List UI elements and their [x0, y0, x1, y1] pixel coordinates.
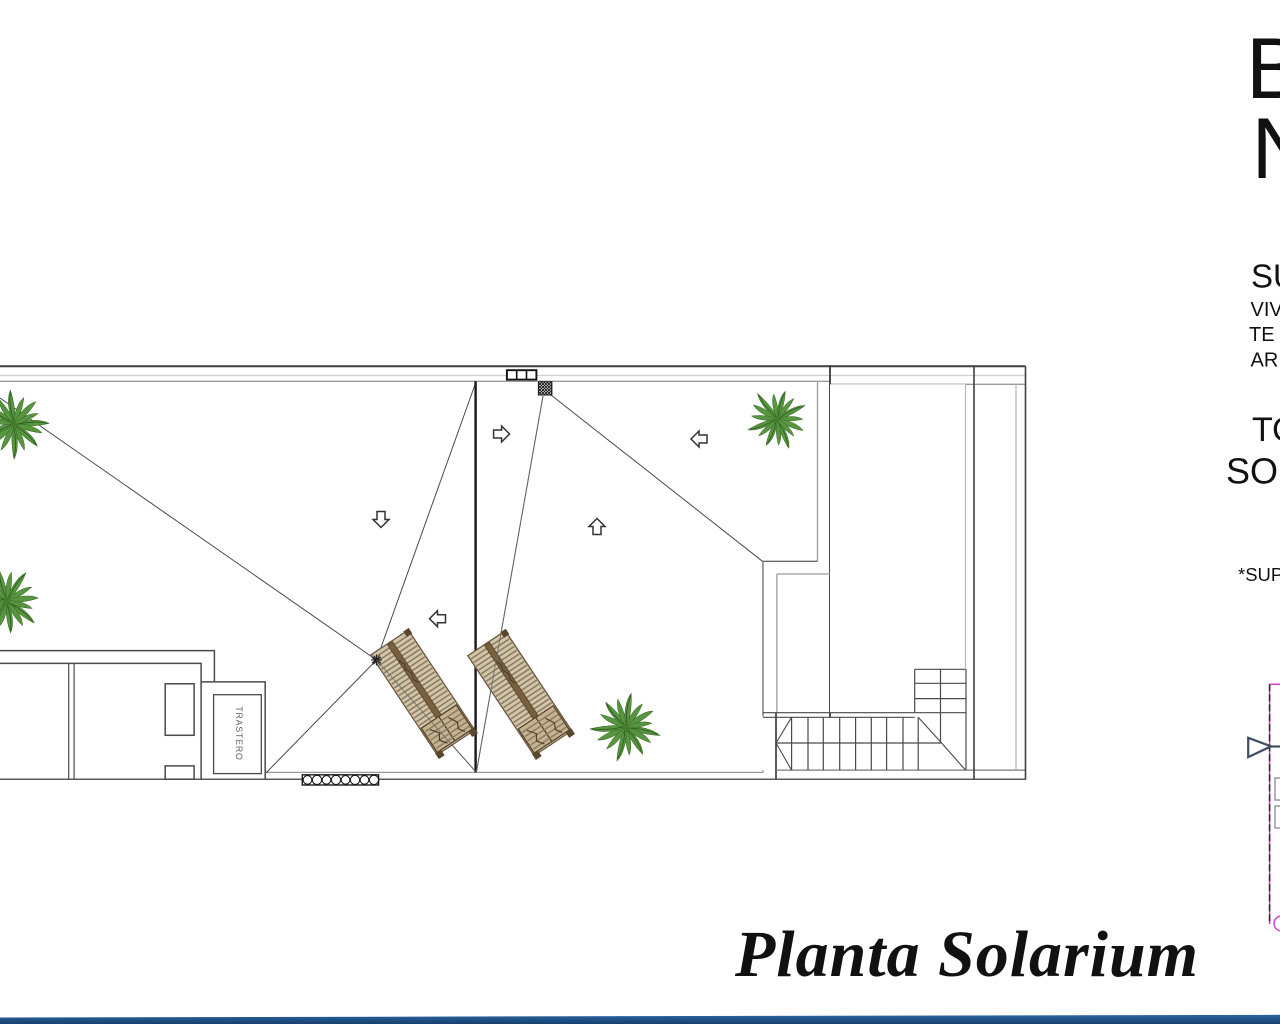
- svg-text:N: N: [1252, 101, 1280, 197]
- svg-text:TRASTERO: TRASTERO: [234, 706, 244, 760]
- svg-text:TO: TO: [1252, 411, 1280, 449]
- svg-text:AR: AR: [1251, 349, 1279, 371]
- svg-text:VIV: VIV: [1251, 299, 1280, 321]
- svg-text:SU: SU: [1251, 257, 1280, 294]
- svg-text:*SUP.: *SUP.: [1238, 564, 1280, 585]
- svg-text:SOL: SOL: [1226, 451, 1280, 492]
- svg-text:Planta Solarium: Planta Solarium: [734, 918, 1198, 991]
- svg-text:TE: TE: [1249, 324, 1275, 346]
